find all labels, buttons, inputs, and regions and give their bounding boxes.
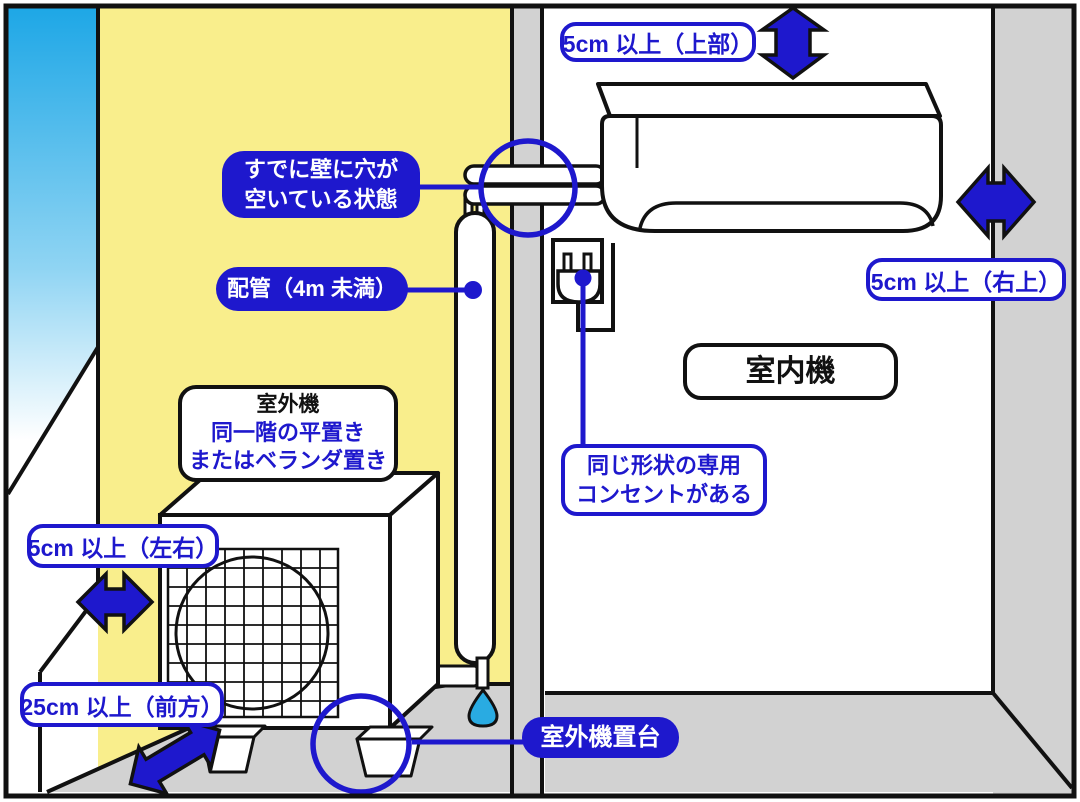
outlet-note: 同じ形状の専用 コンセントがある <box>561 444 767 516</box>
insulated-pipe <box>456 213 494 663</box>
clearance-right-label: 5cm 以上（右上） <box>866 258 1066 301</box>
indoor-unit <box>598 84 941 231</box>
stand-note: 室外機置台 <box>522 717 679 758</box>
clearance-front-text: 25cm 以上（前方） <box>20 688 223 722</box>
indoor-unit-text: 室内機 <box>746 352 836 391</box>
outdoor-unit-title: 室外機 <box>257 391 320 418</box>
pipe-pointer-dot <box>464 281 482 299</box>
clearance-top-text: 5cm 以上（上部） <box>563 25 753 59</box>
partition-wall <box>512 8 542 794</box>
clearance-right-text: 5cm 以上（右上） <box>871 263 1061 297</box>
indoor-unit-front <box>602 116 941 231</box>
outdoor-unit-line1: 同一階の平置き <box>211 419 365 448</box>
indoor-unit-label: 室内機 <box>683 343 898 400</box>
wall-hole-line2: 空いている状態 <box>244 185 398 214</box>
installation-diagram: 5cm 以上（上部） 5cm 以上（右上） すでに壁に穴が 空いている状態 配管… <box>0 0 1080 802</box>
outdoor-unit-side <box>390 473 438 728</box>
clearance-top-label: 5cm 以上（上部） <box>560 22 756 62</box>
clearance-side-label: 5cm 以上（左右） <box>27 524 219 568</box>
stand-text: 室外機置台 <box>541 722 661 754</box>
wall-hole-note: すでに壁に穴が 空いている状態 <box>222 151 420 218</box>
outlet-line2: コンセントがある <box>576 480 752 509</box>
wall-hole-line1: すでに壁に穴が <box>244 155 398 184</box>
plug-pointer-dot <box>575 270 592 287</box>
drain-stub <box>477 658 488 688</box>
outdoor-unit-line2: またはベランダ置き <box>189 447 387 476</box>
room-side-wall <box>993 8 1072 794</box>
clearance-front-label: 25cm 以上（前方） <box>20 682 224 727</box>
indoor-unit-top <box>598 84 940 116</box>
piping-note: 配管（4m 未満） <box>216 267 408 311</box>
outdoor-unit-note: 室外機 同一階の平置き またはベランダ置き <box>178 385 398 482</box>
clearance-side-text: 5cm 以上（左右） <box>28 529 218 563</box>
outlet-line1: 同じ形状の専用 <box>576 451 752 480</box>
piping-text: 配管（4m 未満） <box>227 274 397 303</box>
